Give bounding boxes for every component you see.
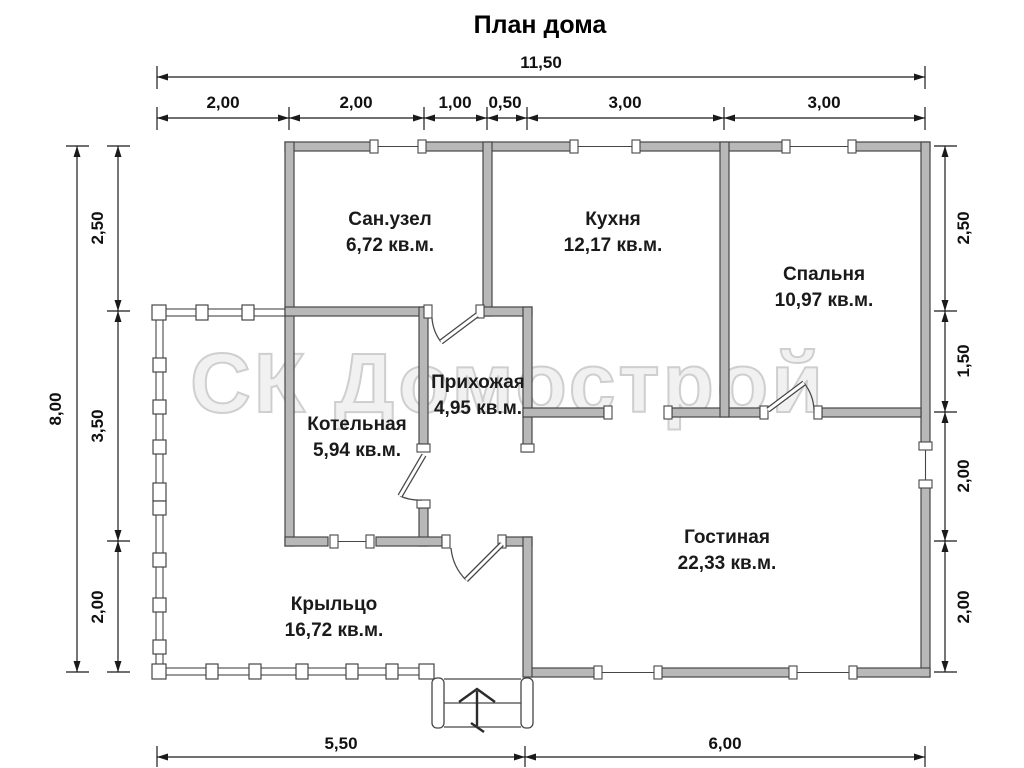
dim-label: 2,50 [88, 211, 107, 244]
porch-post [153, 640, 166, 654]
dim-label-top-total: 11,50 [520, 53, 562, 72]
window-cap [418, 140, 426, 153]
wall-sanuzel-right [483, 142, 492, 316]
wall-bedroom-bottom [822, 408, 921, 417]
dim-label: 5,50 [324, 734, 357, 753]
wall-sanuzel-bottom [285, 307, 430, 316]
room-name-living: Гостиная [684, 527, 770, 548]
room-name-kitchen: Кухня [585, 209, 641, 230]
room-name-porch: Крыльцо [291, 594, 377, 615]
window-cap [789, 666, 797, 679]
room-area-sanuzel: 6,72 кв.м. [346, 235, 434, 256]
porch-post [249, 664, 261, 679]
porch-post [152, 305, 166, 320]
dim-label: 3,50 [88, 409, 107, 442]
dim-label: 2,00 [954, 590, 973, 623]
door-jamb-cap [417, 500, 430, 508]
porch-post [206, 664, 218, 679]
room-area-kitchen: 12,17 кв.м. [564, 235, 663, 256]
dim-label-left-total: 8,00 [46, 392, 65, 425]
room-area-boiler: 5,94 кв.м. [313, 440, 401, 461]
room-area-porch: 16,72 кв.м. [285, 620, 384, 641]
porch-post [419, 664, 434, 679]
wall-left [285, 142, 294, 546]
porch-post [153, 400, 166, 414]
wall-kitchen-bottom-a [523, 408, 604, 417]
dim-label: 1,50 [954, 344, 973, 377]
dim-label: 2,00 [954, 459, 973, 492]
dim-label: 3,00 [807, 93, 840, 112]
porch-wall-top [156, 309, 289, 316]
wall-kitchen-bottom-b [672, 408, 760, 417]
porch-post [153, 483, 166, 501]
window-cap [632, 140, 640, 153]
porch-post [153, 501, 166, 515]
window-cap [654, 666, 662, 679]
dim-label: 2,00 [206, 93, 239, 112]
porch-post [153, 440, 166, 454]
window-cap [919, 480, 932, 488]
door-jamb-cap [442, 535, 450, 548]
room-area-hallway: 4,95 кв.м. [434, 398, 522, 419]
door-jamb-cap [664, 406, 672, 419]
dim-label: 2,50 [954, 211, 973, 244]
porch-post [153, 553, 166, 567]
window-cap [919, 442, 932, 450]
dim-label: 2,00 [339, 93, 372, 112]
room-name-hallway: Прихожая [431, 372, 525, 393]
door-jamb-cap [417, 444, 430, 452]
porch-post [153, 358, 166, 372]
room-name-bedroom: Спальня [783, 264, 865, 285]
wall-kotelnaya-right-a [419, 307, 428, 444]
wall-living-left [523, 537, 532, 677]
porch-post [346, 664, 358, 679]
wall-kotelnaya-bottom-b [376, 537, 442, 546]
wall-kitchen-bedroom-divider [720, 142, 729, 417]
door-jamb-cap [521, 444, 534, 452]
dim-label: 0,50 [488, 93, 521, 112]
porch-post [196, 305, 208, 320]
porch-post [152, 664, 166, 679]
window-cap [848, 140, 856, 153]
porch-post [296, 664, 308, 679]
window-cap [330, 535, 338, 548]
window-cap [849, 666, 857, 679]
window-cap [594, 666, 602, 679]
room-name-boiler: Котельная [307, 414, 406, 435]
room-area-bedroom: 10,97 кв.м. [775, 290, 874, 311]
window-cap [570, 140, 578, 153]
floor-plan-page: СК Домострой [0, 0, 1024, 768]
door-jamb-cap [604, 406, 612, 419]
door-jamb-cap [814, 406, 822, 419]
room-area-living: 22,33 кв.м. [678, 553, 777, 574]
porch-post [153, 598, 166, 612]
dim-label: 6,00 [708, 734, 741, 753]
dim-label: 1,00 [438, 93, 471, 112]
page-title: План дома [474, 11, 608, 39]
window-cap [782, 140, 790, 153]
room-name-sanuzel: Сан.узел [348, 209, 431, 230]
wall-right [921, 142, 930, 677]
porch-post [242, 305, 254, 320]
step-rail-left [432, 678, 444, 728]
window-cap [370, 140, 378, 153]
step-rail-right [521, 678, 533, 728]
window-cap [366, 535, 374, 548]
dim-label: 3,00 [608, 93, 641, 112]
door-jamb-cap [424, 305, 432, 318]
dim-label: 2,00 [88, 590, 107, 623]
porch-post [386, 664, 398, 679]
floor-plan-svg: СК Домострой [0, 0, 1024, 768]
wall-kotelnaya-bottom-a [285, 537, 328, 546]
wall-bottom [524, 668, 930, 677]
